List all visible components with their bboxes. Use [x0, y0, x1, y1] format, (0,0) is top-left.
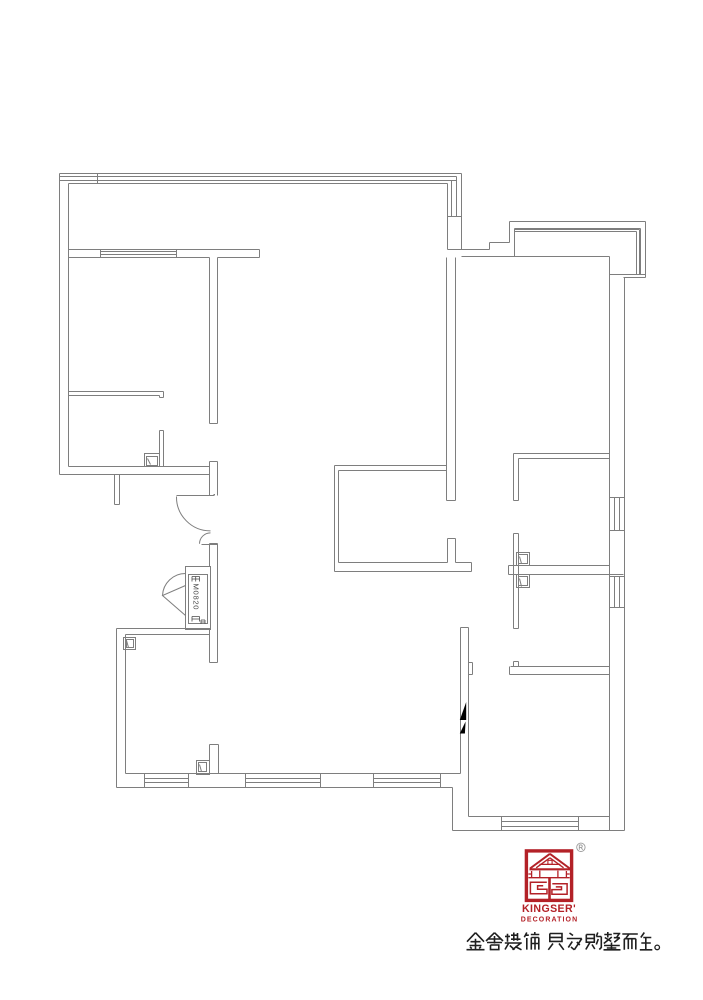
svg-text:KINGSER': KINGSER' [522, 903, 576, 915]
svg-text:M0820: M0820 [191, 584, 200, 611]
svg-text:DECORATION: DECORATION [521, 916, 579, 923]
